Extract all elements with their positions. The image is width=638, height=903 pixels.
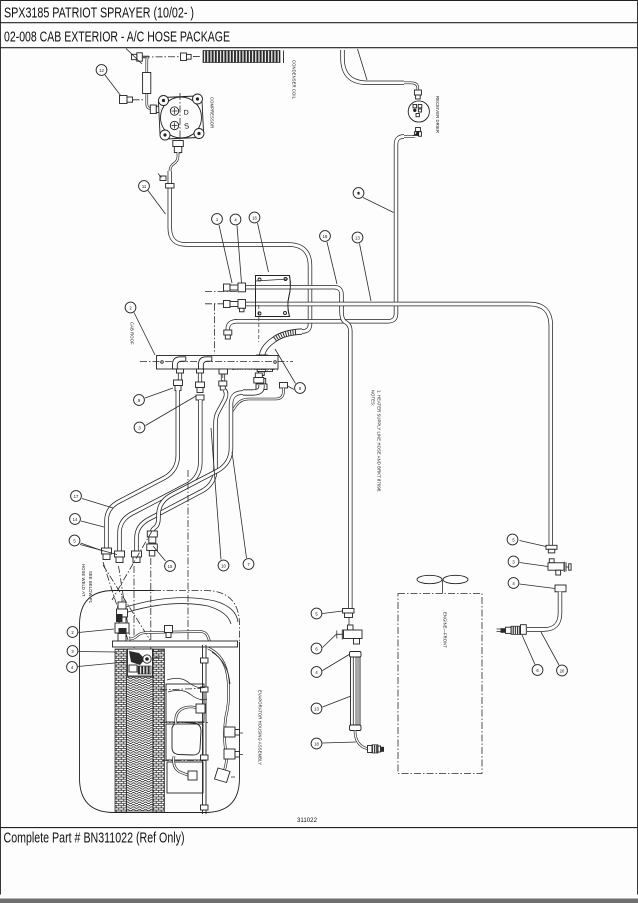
svg-text:15: 15: [168, 564, 173, 569]
svg-text:11: 11: [142, 184, 147, 189]
svg-text:13: 13: [355, 236, 360, 241]
svg-text:17: 17: [74, 494, 79, 499]
svg-text:16: 16: [252, 216, 257, 221]
svg-text:10: 10: [221, 564, 226, 569]
svg-text:CONDENSER COIL: CONDENSER COIL: [292, 60, 297, 100]
svg-text:1. HEATER SUPPLY LINE HOSE AN: 1. HEATER SUPPLY LINE HOSE AND BRKT 8769…: [377, 390, 382, 492]
svg-text:ENGINE—FRONT: ENGINE—FRONT: [443, 612, 448, 648]
svg-text:20: 20: [560, 669, 565, 674]
svg-text:14: 14: [73, 517, 78, 522]
svg-text:12: 12: [99, 68, 104, 73]
svg-text:CAB ROOF: CAB ROOF: [130, 322, 135, 345]
svg-text:HOSE WELD AT: HOSE WELD AT: [81, 564, 86, 597]
svg-text:02-008 CAB EXTERIOR - A/C HOSE: 02-008 CAB EXTERIOR - A/C HOSE PACKAGE: [4, 29, 230, 46]
svg-text:SPX3185 PATRIOT SPRAYER (10/02: SPX3185 PATRIOT SPRAYER (10/02- ): [4, 5, 194, 22]
svg-text:18: 18: [323, 234, 328, 239]
svg-text:311022: 311022: [297, 817, 318, 824]
svg-text:COMPRESSOR: COMPRESSOR: [210, 97, 215, 128]
svg-text:NOTES:: NOTES:: [371, 390, 376, 406]
svg-text:Complete Part # BN311022 (Ref: Complete Part # BN311022 (Ref Only): [4, 831, 185, 847]
svg-text:18: 18: [314, 742, 319, 747]
svg-text:13: 13: [314, 707, 319, 712]
svg-text:RECEIVER DRIER: RECEIVER DRIER: [435, 96, 440, 133]
svg-text:D: D: [183, 109, 189, 117]
svg-text:EVAPORATOR HOUSING ASSEMBLY: EVAPORATOR HOUSING ASSEMBLY: [258, 690, 263, 765]
